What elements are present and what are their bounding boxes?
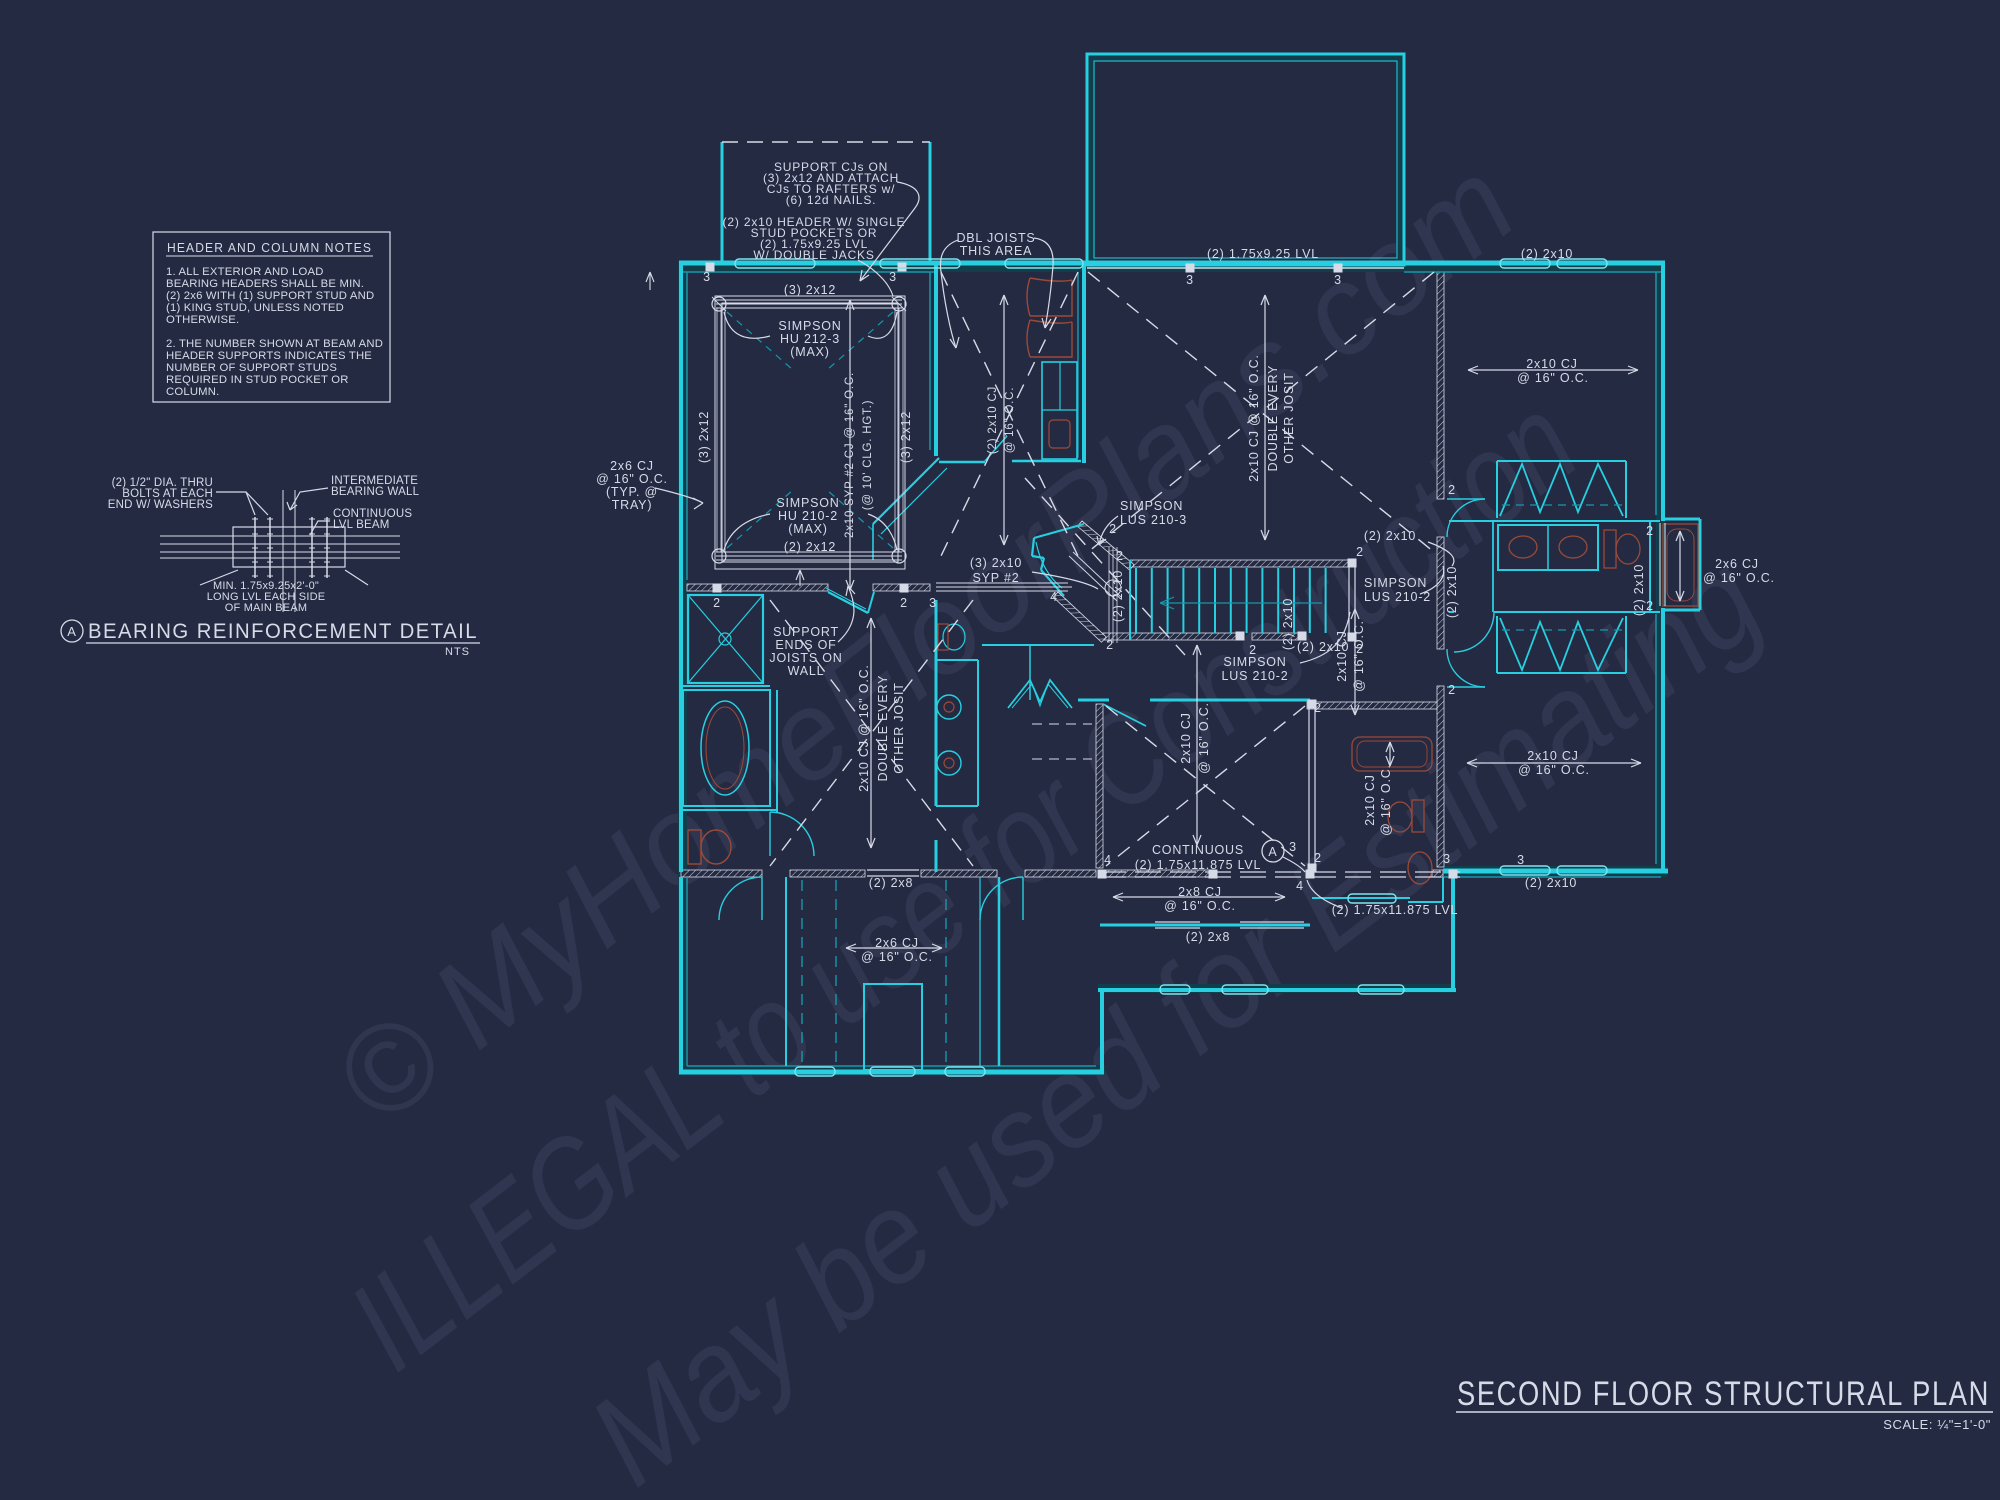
svg-text:SIMPSON: SIMPSON: [1364, 576, 1427, 590]
svg-text:DOUBLE EVERY: DOUBLE EVERY: [1266, 365, 1280, 472]
svg-text:SCALE: ¼"=1'-0": SCALE: ¼"=1'-0": [1883, 1417, 1991, 1432]
svg-text:2: 2: [1314, 701, 1322, 715]
svg-text:4: 4: [1296, 879, 1304, 893]
svg-text:(2) 2x10: (2) 2x10: [1111, 570, 1125, 622]
svg-text:3: 3: [1443, 852, 1451, 866]
svg-text:(1) KING STUD, UNLESS NOTED: (1) KING STUD, UNLESS NOTED: [166, 302, 344, 314]
svg-text:(2) 2x10: (2) 2x10: [1281, 598, 1295, 650]
svg-text:SIMPSON: SIMPSON: [1120, 499, 1183, 513]
svg-text:@ 16" O.C.: @ 16" O.C.: [1518, 763, 1590, 777]
svg-text:NTS: NTS: [445, 646, 470, 658]
svg-text:(2) 2x10: (2) 2x10: [1525, 876, 1577, 890]
svg-text:@ 16" O.C.: @ 16" O.C.: [1703, 571, 1775, 585]
svg-text:OF MAIN BEAM: OF MAIN BEAM: [225, 602, 307, 614]
svg-text:(2) 2x10: (2) 2x10: [1445, 566, 1459, 618]
svg-text:HU 210-2: HU 210-2: [778, 509, 838, 523]
svg-text:(2) 2x8: (2) 2x8: [1186, 930, 1231, 944]
svg-text:@ 16" O.C.: @ 16" O.C.: [596, 472, 668, 486]
svg-text:(2) 1.75x9.25 LVL: (2) 1.75x9.25 LVL: [1207, 247, 1319, 261]
svg-text:OTHER JOSIT: OTHER JOSIT: [892, 682, 906, 773]
svg-text:DOUBLE EVERY: DOUBLE EVERY: [876, 675, 890, 782]
svg-text:DBL JOISTS: DBL JOISTS: [956, 231, 1035, 245]
svg-text:2x10 CJ: 2x10 CJ: [1335, 630, 1349, 681]
svg-text:2x8 CJ: 2x8 CJ: [1178, 885, 1222, 899]
svg-text:(MAX): (MAX): [790, 345, 829, 359]
svg-text:CONTINUOUS: CONTINUOUS: [1152, 843, 1244, 857]
svg-text:3: 3: [703, 270, 711, 284]
svg-text:OTHERWISE.: OTHERWISE.: [166, 314, 239, 326]
svg-text:@ 16" O.C.: @ 16" O.C.: [1164, 899, 1236, 913]
svg-text:SECOND FLOOR STRUCTURAL PLAN: SECOND FLOOR STRUCTURAL PLAN: [1457, 1375, 1990, 1413]
svg-text:2: 2: [1448, 483, 1456, 497]
svg-text:A: A: [1268, 845, 1277, 859]
svg-text:(2) 2x6 WITH (1) SUPPORT STUD: (2) 2x6 WITH (1) SUPPORT STUD AND: [166, 290, 374, 302]
svg-text:2x10 CJ @ 16" O.C.: 2x10 CJ @ 16" O.C.: [1247, 354, 1261, 481]
svg-text:2x10 CJ @ 16" O.C.: 2x10 CJ @ 16" O.C.: [857, 664, 871, 791]
svg-text:(2) 2x10: (2) 2x10: [1364, 529, 1416, 543]
svg-text:HU 212-3: HU 212-3: [780, 332, 840, 346]
svg-text:ENDS OF: ENDS OF: [775, 638, 836, 652]
svg-text:LUS 210-2: LUS 210-2: [1364, 590, 1431, 604]
svg-text:(2) 1.75x11.875 LVL: (2) 1.75x11.875 LVL: [1135, 858, 1262, 872]
svg-text:2x6 CJ: 2x6 CJ: [875, 936, 919, 950]
svg-text:3: 3: [1517, 853, 1525, 867]
svg-text:BEARING REINFORCEMENT DETAIL: BEARING REINFORCEMENT DETAIL: [88, 620, 478, 643]
svg-text:(2) 2x12: (2) 2x12: [784, 540, 836, 554]
svg-text:2: 2: [1448, 683, 1456, 697]
svg-text:@ 16" O.C.: @ 16" O.C.: [861, 950, 933, 964]
svg-text:2: 2: [1314, 851, 1322, 865]
svg-text:@ 16" O.C.: @ 16" O.C.: [1517, 371, 1589, 385]
svg-text:BEARING WALL: BEARING WALL: [331, 486, 420, 498]
svg-text:2x6 CJ: 2x6 CJ: [1715, 557, 1759, 571]
svg-text:2: 2: [1116, 549, 1124, 563]
svg-text:(3) 2x12: (3) 2x12: [784, 283, 836, 297]
svg-text:3: 3: [889, 270, 897, 284]
svg-text:BEARING HEADERS SHALL BE MIN.: BEARING HEADERS SHALL BE MIN.: [166, 278, 364, 290]
svg-text:THIS AREA: THIS AREA: [960, 244, 1033, 258]
svg-text:LUS 210-3: LUS 210-3: [1120, 513, 1187, 527]
svg-text:(MAX): (MAX): [788, 522, 827, 536]
svg-text:(3) 2x12: (3) 2x12: [697, 411, 711, 463]
svg-text:2: 2: [1356, 545, 1364, 559]
svg-text:COLUMN.: COLUMN.: [166, 386, 220, 398]
svg-text:(3) 2x10: (3) 2x10: [970, 556, 1022, 570]
svg-text:JOISTS ON: JOISTS ON: [769, 651, 842, 665]
svg-text:2x10 CJ: 2x10 CJ: [1527, 749, 1578, 763]
svg-text:REQUIRED IN STUD POCKET OR: REQUIRED IN STUD POCKET OR: [166, 374, 349, 386]
svg-text:END W/ WASHERS: END W/ WASHERS: [108, 499, 213, 511]
svg-text:W/ DOUBLE JACKS: W/ DOUBLE JACKS: [753, 248, 874, 262]
svg-text:2x10 CJ: 2x10 CJ: [1363, 774, 1377, 825]
svg-text:(3) 2x12: (3) 2x12: [899, 411, 913, 463]
svg-text:(2) 1.75x11.875 LVL: (2) 1.75x11.875 LVL: [1332, 903, 1459, 917]
svg-text:HEADER SUPPORTS INDICATES THE: HEADER SUPPORTS INDICATES THE: [166, 350, 372, 362]
svg-text:2: 2: [1356, 642, 1364, 656]
svg-text:4: 4: [1050, 590, 1058, 604]
svg-text:2x10 SYP #2 CJ @ 16" O.C.: 2x10 SYP #2 CJ @ 16" O.C.: [844, 372, 856, 538]
svg-text:@ 16" O.C.: @ 16" O.C.: [1352, 620, 1366, 692]
svg-text:(@ 10' CLG. HGT.): (@ 10' CLG. HGT.): [862, 400, 874, 511]
svg-text:2x10 CJ: 2x10 CJ: [1526, 357, 1577, 371]
svg-text:1. ALL EXTERIOR AND LOAD: 1. ALL EXTERIOR AND LOAD: [166, 266, 324, 278]
svg-text:SIMPSON: SIMPSON: [776, 496, 839, 510]
svg-text:2x10 CJ: 2x10 CJ: [1179, 712, 1193, 763]
svg-text:(2) 2x10 CJ: (2) 2x10 CJ: [987, 386, 999, 454]
svg-text:(2) 2x8: (2) 2x8: [869, 876, 914, 890]
svg-text:HEADER AND COLUMN NOTES: HEADER AND COLUMN NOTES: [167, 240, 372, 255]
svg-text:NUMBER OF SUPPORT STUDS: NUMBER OF SUPPORT STUDS: [166, 362, 337, 374]
svg-text:2. THE NUMBER SHOWN AT BEAM AN: 2. THE NUMBER SHOWN AT BEAM AND: [166, 338, 383, 350]
svg-text:OTHER JOSIT: OTHER JOSIT: [1282, 372, 1296, 463]
svg-text:A: A: [67, 624, 76, 639]
svg-text:2: 2: [1646, 524, 1654, 538]
svg-text:2x6 CJ: 2x6 CJ: [610, 459, 654, 473]
svg-text:(TYP. @: (TYP. @: [606, 485, 658, 499]
svg-text:LUS 210-2: LUS 210-2: [1222, 669, 1289, 683]
svg-text:@ 16" O.C.: @ 16" O.C.: [1004, 387, 1016, 454]
svg-text:(2) 2x10: (2) 2x10: [1521, 247, 1573, 261]
svg-text:WALL: WALL: [788, 664, 825, 678]
svg-text:LVL BEAM: LVL BEAM: [333, 519, 390, 531]
svg-text:2: 2: [1106, 638, 1114, 652]
svg-text:@ 16" O.C.: @ 16" O.C.: [1379, 764, 1393, 836]
svg-text:SIMPSON: SIMPSON: [778, 319, 841, 333]
svg-text:TRAY): TRAY): [612, 498, 653, 512]
svg-text:SYP #2: SYP #2: [973, 571, 1020, 585]
svg-text:@ 16" O.C.: @ 16" O.C.: [1197, 702, 1211, 774]
svg-text:3: 3: [1186, 273, 1194, 287]
svg-text:3: 3: [929, 596, 937, 610]
svg-text:SIMPSON: SIMPSON: [1223, 655, 1286, 669]
svg-text:(2) 2x10: (2) 2x10: [1632, 564, 1646, 616]
svg-text:2: 2: [900, 596, 908, 610]
svg-text:3: 3: [1334, 273, 1342, 287]
svg-text:3: 3: [1289, 840, 1297, 854]
svg-text:2: 2: [1646, 599, 1654, 613]
svg-text:4: 4: [1104, 853, 1112, 867]
svg-text:(6) 12d NAILS.: (6) 12d NAILS.: [786, 193, 877, 207]
svg-text:SUPPORT: SUPPORT: [773, 625, 839, 639]
svg-text:2: 2: [713, 596, 721, 610]
